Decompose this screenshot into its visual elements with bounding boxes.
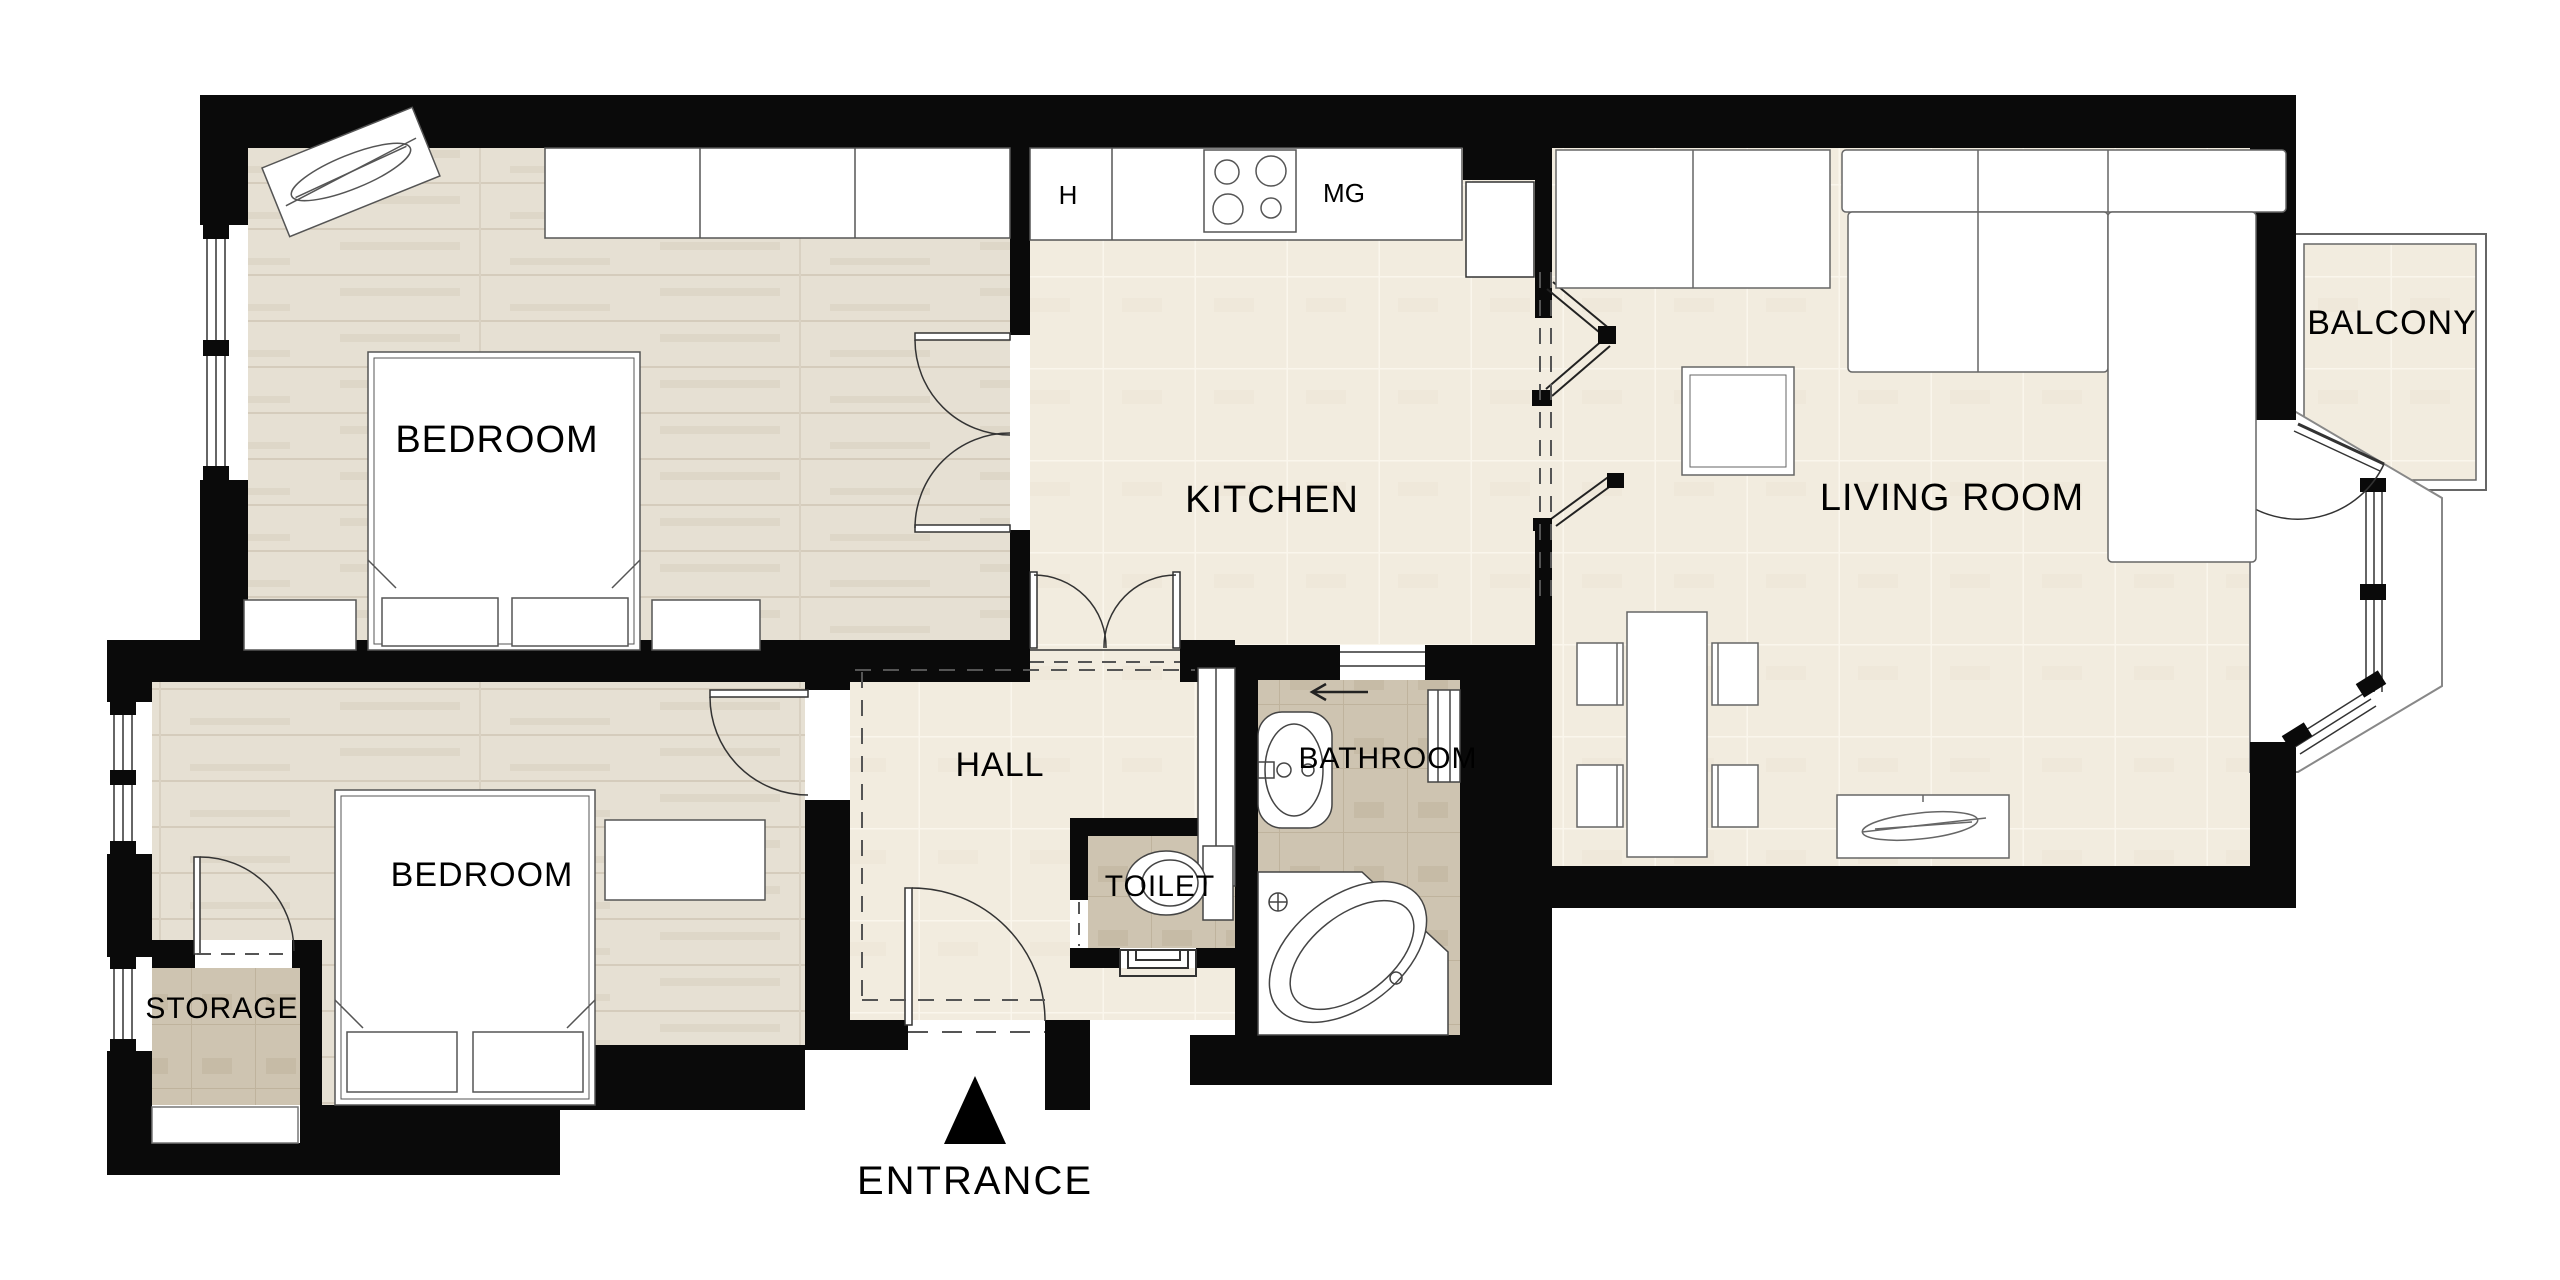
entrance-arrow-icon xyxy=(944,1076,1006,1144)
coffee-table xyxy=(1682,367,1794,475)
floor-plan: BALCONY xyxy=(0,0,2560,1280)
bathroom-label: BATHROOM xyxy=(1298,742,1477,775)
chair xyxy=(1712,765,1758,827)
chair xyxy=(1577,643,1623,705)
hob-label: H xyxy=(1059,180,1078,210)
balcony-label: BALCONY xyxy=(2307,304,2477,342)
entrance-label: ENTRANCE xyxy=(857,1159,1093,1203)
stove-icon xyxy=(1204,150,1296,232)
microwave-label: MG xyxy=(1323,178,1365,208)
bedroom-top-label: BEDROOM xyxy=(395,419,598,461)
pillow xyxy=(347,1032,457,1092)
storage-floor xyxy=(150,968,300,1105)
desk xyxy=(605,820,765,900)
sideboard xyxy=(1837,795,2009,858)
wardrobe xyxy=(545,148,1010,238)
bedroom-bottom-label: BEDROOM xyxy=(391,856,574,894)
kitchen-label: KITCHEN xyxy=(1185,479,1359,521)
window-bedroom-bottom xyxy=(110,702,136,854)
nightstand xyxy=(652,600,760,650)
chair xyxy=(1712,643,1758,705)
storage-label: STORAGE xyxy=(145,992,298,1025)
pillow xyxy=(382,598,498,646)
fridge xyxy=(1466,182,1534,277)
storage-closet xyxy=(152,1107,298,1143)
bed xyxy=(335,790,595,1105)
bed xyxy=(368,352,640,650)
chair xyxy=(1577,765,1623,827)
dining-table xyxy=(1627,612,1707,857)
pillow xyxy=(512,598,628,646)
living-room-label: LIVING ROOM xyxy=(1820,477,2084,519)
pillow xyxy=(473,1032,583,1092)
window-storage xyxy=(110,957,136,1051)
floor-plan-svg: BALCONY xyxy=(0,0,2560,1280)
toilet-label: TOILET xyxy=(1105,870,1215,903)
window-bedroom-top xyxy=(203,225,229,480)
hall-label: HALL xyxy=(955,746,1044,784)
nightstand xyxy=(244,600,356,650)
